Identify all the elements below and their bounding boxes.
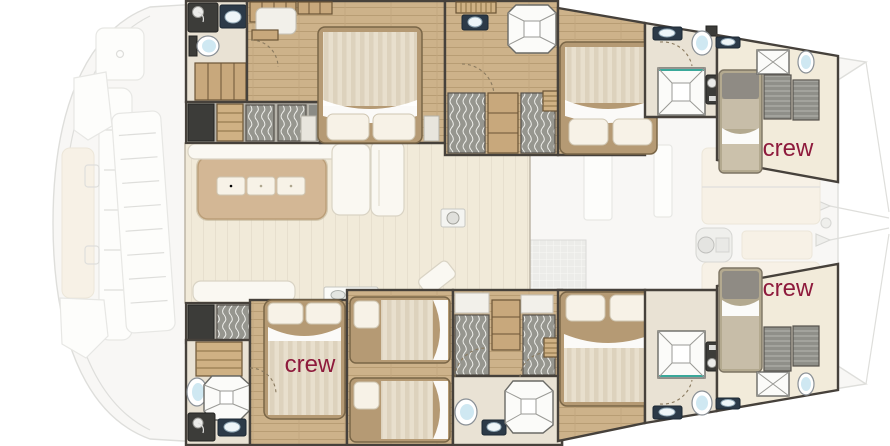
sink <box>218 419 246 436</box>
shower <box>508 5 556 53</box>
shelf-rack <box>456 2 496 13</box>
wardrobe <box>448 93 485 153</box>
crew-label-port-forepeak: crew <box>763 135 814 162</box>
salon <box>185 141 530 303</box>
wardrobe <box>455 315 489 375</box>
shower-pan <box>757 372 789 396</box>
single-bed-upper <box>350 297 450 363</box>
locker <box>764 327 791 371</box>
windlass <box>696 228 732 262</box>
port-galley-strip <box>186 102 320 143</box>
locker <box>793 326 819 366</box>
deck-plan-drawing: crew crew crew <box>0 0 890 446</box>
crew-berth <box>719 70 762 173</box>
hull-steps <box>543 91 559 111</box>
sofa-corner-seat <box>332 144 370 215</box>
toilet <box>692 391 712 415</box>
salon-door-panel-2 <box>654 145 672 217</box>
cabinet-top <box>521 295 553 313</box>
port-forward-head <box>645 23 719 117</box>
nightstand <box>301 116 316 141</box>
companionway-steps <box>196 342 242 376</box>
locker <box>188 305 214 341</box>
dish-rack <box>246 105 274 141</box>
starboard-forward-cabin <box>558 290 657 441</box>
catamaran-deck-plan: crew crew crew <box>0 0 890 446</box>
shelf-column <box>488 93 518 153</box>
vanity-shelf <box>252 30 278 40</box>
double-bed <box>560 42 657 154</box>
double-bed <box>560 292 657 406</box>
overhead-cabinet <box>298 2 332 14</box>
sink <box>482 420 506 435</box>
port-aft-head <box>186 1 247 102</box>
sink <box>716 37 740 48</box>
sink <box>653 27 682 40</box>
shower-stall <box>188 413 215 441</box>
locker <box>764 75 791 119</box>
deck-hatch <box>524 240 586 292</box>
starboard-twin-cabin <box>347 290 453 445</box>
shower <box>658 68 705 115</box>
sink <box>716 398 740 409</box>
foredeck-bench <box>742 231 812 259</box>
wash-basin <box>798 51 814 73</box>
chaise-longue <box>371 141 404 216</box>
companionway-steps <box>217 104 243 141</box>
starboard-forward-head <box>645 290 719 423</box>
crew-label-starboard-forepeak: crew <box>763 275 814 302</box>
cabinet-top <box>455 293 489 313</box>
port-mid-section <box>445 1 559 155</box>
anchor-roller <box>821 218 831 228</box>
helm-seat-upper <box>74 72 112 140</box>
galley-locker <box>188 104 214 141</box>
shower-pan <box>757 50 789 74</box>
shelf-unit <box>195 63 246 100</box>
wash-basin <box>455 399 477 425</box>
sink <box>220 5 246 28</box>
wash-basin <box>798 373 814 395</box>
toilet <box>692 31 712 55</box>
starboard-aft-head <box>186 340 250 445</box>
single-bed-lower <box>350 378 450 442</box>
crew-label-starboard-forward-cabin: crew <box>285 351 336 378</box>
shower <box>505 381 553 433</box>
toilet <box>189 36 219 56</box>
locker <box>793 80 819 120</box>
table-seat-cushions <box>217 177 305 195</box>
sink <box>653 406 682 419</box>
nightstand <box>424 116 439 141</box>
crew-berth <box>719 268 762 372</box>
shelf-column <box>492 300 520 350</box>
double-bed <box>318 27 422 143</box>
sink <box>462 15 488 30</box>
shower <box>658 331 705 378</box>
port-forward-cabin <box>558 8 657 155</box>
aft-bench-cushion <box>62 148 94 298</box>
starboard-mid-section <box>453 290 562 445</box>
floor-fitting <box>441 209 465 227</box>
